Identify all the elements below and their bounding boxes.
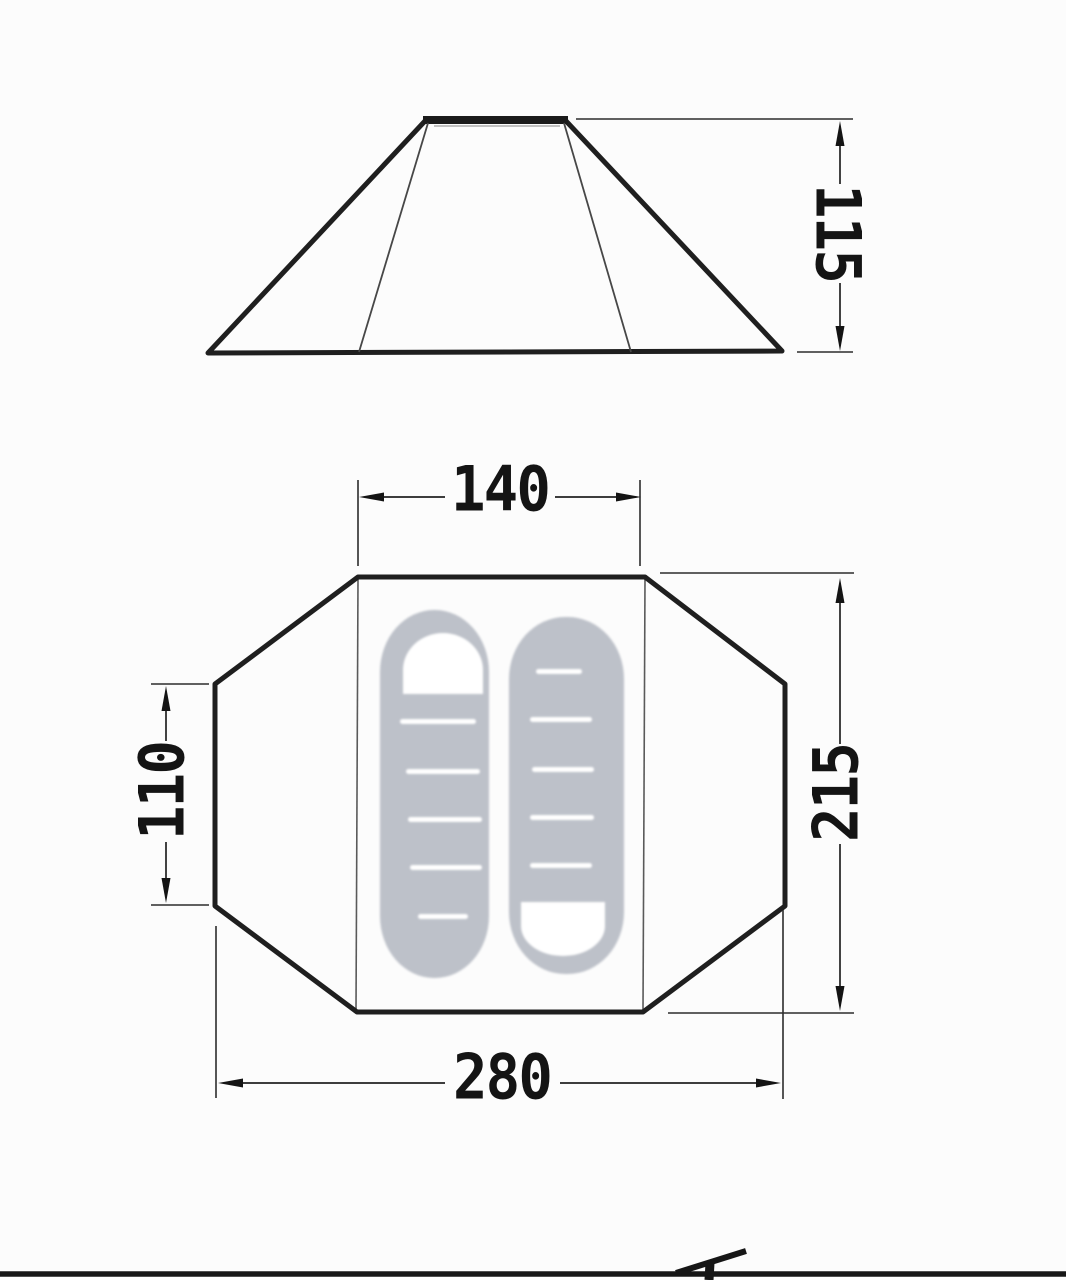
floor-plan-view (215, 577, 785, 1012)
dimension-total-depth: 215 (660, 573, 873, 1013)
arrow-down-icon (836, 986, 845, 1011)
cropped-pole-stub (709, 1263, 710, 1280)
cropped-bottom-figure (0, 1251, 1066, 1280)
sleeping-mats (380, 610, 624, 978)
arrow-right-icon (616, 493, 641, 502)
dimension-inner-width: 140 (358, 453, 641, 567)
sleeping-mat-left (380, 610, 489, 978)
total-depth-value: 215 (800, 744, 873, 842)
arrow-down-icon (162, 878, 171, 903)
floor-outline (215, 577, 785, 1012)
arrow-down-icon (836, 326, 845, 351)
inner-tent-line-right (643, 579, 645, 1011)
arrow-left-icon (218, 1079, 243, 1088)
diagram-svg: 115 (0, 0, 1066, 1280)
arrow-right-icon (756, 1079, 781, 1088)
inner-width-value: 140 (451, 453, 549, 526)
sleeping-mat-right (509, 617, 624, 974)
dimension-side-section: 110 (126, 684, 210, 905)
total-width-value: 280 (453, 1041, 551, 1114)
arrow-up-icon (836, 578, 845, 603)
arrow-left-icon (359, 493, 384, 502)
side-height-value: 115 (802, 184, 875, 282)
inner-tent-line-left (356, 579, 358, 1011)
arrow-up-icon (162, 686, 171, 711)
tent-side-outline (208, 121, 782, 353)
tent-dimensions-diagram: 115 (0, 0, 1066, 1280)
side-elevation-view (208, 120, 782, 353)
side-section-value: 110 (126, 742, 199, 840)
arrow-up-icon (836, 121, 845, 146)
